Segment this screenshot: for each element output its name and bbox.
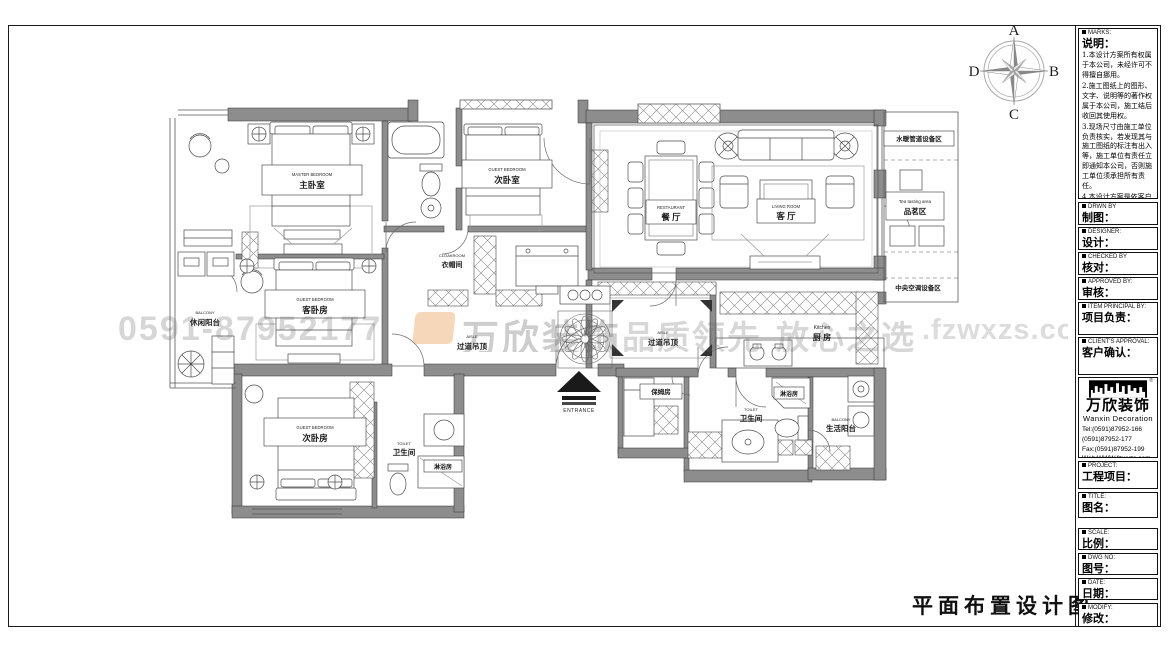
compass-rose: A B C D: [969, 23, 1059, 123]
label-plumbing-cn: 水暖管道设备区: [896, 134, 942, 143]
label-bedroom2-cn: 次卧室: [494, 175, 520, 185]
company-logo-block: ® 万欣装饰 Wanxin Decoration Tel:(0591)87952…: [1078, 377, 1158, 458]
label-kitchen-en: Kitchen: [814, 325, 831, 331]
registered-mark-icon: ®: [1149, 378, 1153, 384]
bullet-square-icon: [1082, 254, 1086, 258]
label-entrance-en: ENTRANCE: [563, 408, 595, 414]
bullet-square-icon: [1082, 304, 1086, 308]
label-living-cn: 客 厅: [775, 211, 796, 221]
field-drawn-by: DRWN BY 制图：: [1078, 202, 1158, 225]
field-approved-by: APPROVED BY: 审核：: [1078, 277, 1158, 300]
field-checked-by: CHECKED BY 核对：: [1078, 252, 1158, 275]
field-project: PROJECT: 工程项目：: [1078, 461, 1158, 489]
bullet-square-icon: [1082, 204, 1086, 208]
label-aisle2-en: AISLE: [657, 330, 669, 335]
label-hvac-cn: 中央空调设备区: [895, 283, 941, 292]
title-block-notes: MARKS: 说明： 1.本设计方案所有权属于本公司，未经许可不得擅自挪用。 2…: [1078, 28, 1158, 199]
corridor-marks: [610, 298, 714, 358]
field-modify: MODIFY: 修改：: [1078, 603, 1158, 627]
label-balcony-service-cn: 生活阳台: [826, 423, 856, 433]
field-item-principal: ITEM PRINCIPAL BY: 项目负责：: [1078, 302, 1158, 335]
notes-label: 说明：: [1082, 37, 1154, 50]
company-fax: Fax:(0591)87952-199: [1082, 445, 1154, 455]
field-client-approval: CLIENT'S APPROVAL: 客户确认：: [1078, 337, 1158, 375]
field-date: DATE: 日期：: [1078, 578, 1158, 600]
compass-north-label: A: [1009, 23, 1020, 39]
note-3: 3.现场尺寸由施工单位负责核实，若发现其与施工图纸的标注有出入等，施工单位有责任…: [1082, 123, 1154, 193]
note-4: 4.本设计方案是依客户要求设计，经客户签字即视为同意认可，不得随意更改。: [1082, 193, 1154, 199]
label-dining-en: RESTAURANT: [657, 205, 686, 210]
label-balcony-service-en: BALCONY: [831, 417, 850, 422]
floor-plan: MASTER BEDROOM 主卧室 GUEST BEDROOM 次卧室 GUE…: [0, 0, 1170, 653]
label-aisle1-en: AISLE: [466, 334, 478, 339]
label-tea-en: Tea tasting area: [899, 199, 932, 204]
bullet-square-icon: [1082, 30, 1086, 34]
compass-south-label: C: [1009, 107, 1019, 123]
company-tel-1: Tel:(0591)87952-166: [1082, 425, 1154, 435]
entry-mandala: [558, 311, 612, 368]
label-clo­ak-en: CLOAKROOM: [439, 253, 465, 258]
field-dwg-no: DWG NO: 图号：: [1078, 553, 1158, 575]
label-tea-cn: 品茗区: [904, 206, 927, 216]
entrance-arrow: [557, 371, 601, 405]
label-dining-cn: 餐 厅: [660, 212, 681, 222]
bullet-square-icon: [1082, 530, 1086, 534]
company-tel-2: (0591)87952-177: [1082, 435, 1154, 445]
label-nanny-cn: 保姆房: [650, 387, 671, 396]
label-kitchen-cn: 厨 房: [813, 332, 831, 342]
label-bedroom3-en: GUEST BEDROOM: [296, 425, 334, 430]
compass-east-label: B: [1049, 64, 1059, 80]
field-designer: DESIGNER: 设计：: [1078, 227, 1158, 250]
label-bedroom3-cn: 次卧房: [302, 433, 328, 443]
bullet-square-icon: [1082, 580, 1086, 584]
label-shower2-cn: 淋浴房: [434, 463, 452, 471]
bullet-square-icon: [1082, 229, 1086, 233]
bullet-square-icon: [1082, 279, 1086, 283]
furniture-master-bath: [388, 122, 444, 218]
note-1: 1.本设计方案所有权属于本公司，未经许可不得擅自挪用。: [1082, 51, 1154, 81]
bullet-square-icon: [1082, 339, 1086, 343]
company-web: Web:WWW.fzwxzs.com: [1082, 454, 1154, 458]
label-master-en: MASTER BEDROOM: [292, 172, 333, 177]
label-guest-cn: 客卧房: [301, 305, 328, 315]
compass-west-label: D: [969, 64, 980, 80]
label-aisle1-cn: 过道吊顶: [457, 341, 487, 351]
label-toilet-main-en: TOILET: [744, 407, 758, 412]
field-scale: SCALE: 比例：: [1078, 528, 1158, 550]
label-toilet-main-cn: 卫生间: [740, 413, 763, 423]
label-balcony-leisure-en: BALCONY: [195, 310, 214, 315]
label-toilet2-cn: 卫生间: [393, 447, 416, 457]
label-aisle2-cn: 过道吊顶: [648, 337, 678, 347]
bullet-square-icon: [1082, 555, 1086, 559]
compass-star: [980, 37, 1048, 105]
field-drawing-name: TITLE: 图名：: [1078, 492, 1158, 518]
label-toilet2-en: TOILET: [397, 441, 411, 446]
drawing-title: 平面布置设计图: [912, 590, 1094, 620]
company-name-en: Wanxin Decoration: [1082, 414, 1154, 423]
label-shower-main-cn: 淋浴房: [780, 390, 798, 398]
drawing-sheet: MASTER BEDROOM 主卧室 GUEST BEDROOM 次卧室 GUE…: [0, 0, 1170, 653]
bullet-square-icon: [1082, 463, 1086, 467]
company-logo-skyline: ®: [1089, 380, 1147, 398]
label-guest-en: GUEST BEDROOM: [296, 297, 334, 302]
notes-tag: MARKS:: [1082, 30, 1154, 37]
label-living-en: LIVING ROOM: [772, 204, 800, 209]
label-cloak-cn: 衣帽间: [442, 260, 463, 269]
bullet-square-icon: [1082, 494, 1086, 498]
label-balcony-leisure-cn: 休闲阳台: [189, 317, 220, 327]
furniture-leisure-balcony: [178, 230, 234, 384]
label-bedroom2-en: GUEST BEDROOM: [488, 167, 526, 172]
label-master-cn: 主卧室: [299, 180, 325, 190]
note-2: 2.施工图纸上的图形、文字、说明等的著作权属于本公司，施工结后收回其使用权。: [1082, 82, 1154, 122]
bullet-square-icon: [1082, 605, 1086, 609]
company-name-cn: 万欣装饰: [1082, 398, 1154, 414]
